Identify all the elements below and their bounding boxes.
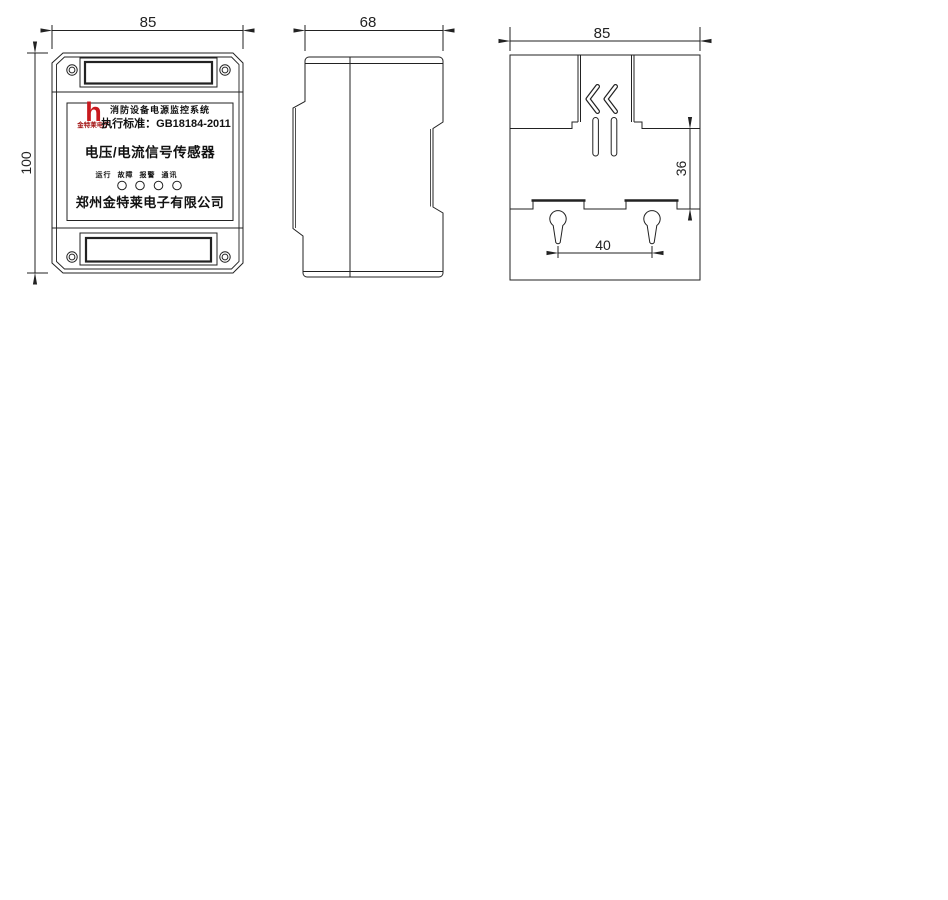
din-release-chevron-icons: [588, 87, 616, 112]
screw-top-left: [67, 65, 77, 75]
nameplate-standard-line: 执行标准：GB18184-2011: [100, 119, 232, 130]
dim-back-rail-height: 36: [673, 161, 689, 177]
nameplate-product-name: 电压/电流信号传感器: [67, 146, 233, 160]
keyhole-mount-right: [644, 211, 660, 244]
nameplate-system-line: 消防设备电源监控系统: [104, 106, 216, 115]
led-lamp-run: [118, 181, 127, 190]
led-lamp-comm: [173, 181, 182, 190]
din-channel-walls: [510, 55, 700, 129]
indicator-label: 运行: [96, 172, 112, 179]
front-view: h: [52, 53, 243, 273]
led-lamp-alarm: [154, 181, 163, 190]
screw-bottom-left: [67, 252, 77, 262]
indicator-label: 故障: [118, 172, 134, 179]
screw-bottom-right: [220, 252, 230, 262]
technical-drawing-canvas: h 85 100 68: [0, 0, 948, 900]
screw-top-right: [220, 65, 230, 75]
side-view: [293, 57, 443, 277]
dim-back-hole-spacing: 40: [595, 237, 611, 253]
back-dimensions: [510, 27, 700, 258]
vent-slot-right: [611, 118, 617, 157]
front-outline: [52, 53, 243, 273]
dim-front-width: 85: [140, 14, 157, 31]
drawing-lineart: h 85 100 68: [0, 0, 948, 900]
dim-side-width: 68: [360, 14, 377, 31]
indicator-labels-row: 运行故障报警通讯: [59, 172, 214, 179]
nameplate-company-name: 郑州金特莱电子有限公司: [67, 196, 233, 209]
top-terminal-window-inner: [85, 62, 212, 84]
led-lamp-fault: [136, 181, 145, 190]
bottom-terminal-window-inner: [86, 238, 211, 262]
dim-front-height: 100: [18, 151, 34, 175]
dim-back-width: 85: [594, 25, 611, 42]
side-outline: [293, 57, 443, 277]
vent-slot-left: [593, 118, 599, 157]
indicator-label: 报警: [140, 172, 156, 179]
keyhole-mount-left: [550, 211, 566, 244]
indicator-label: 通讯: [162, 172, 178, 179]
